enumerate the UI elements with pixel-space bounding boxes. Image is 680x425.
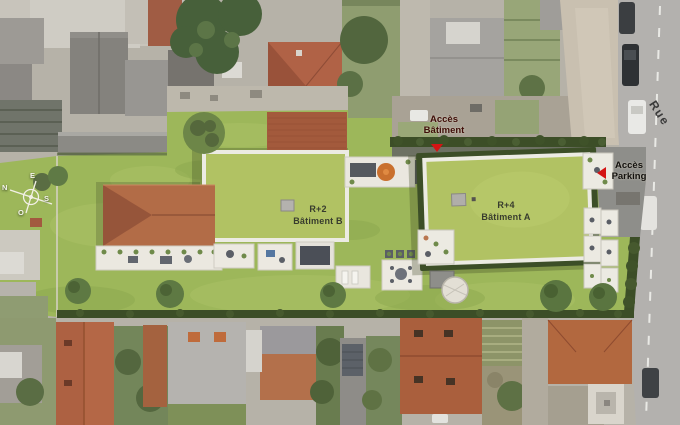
bottom-hedge xyxy=(57,310,634,318)
bottom-houses xyxy=(54,318,632,425)
building-b-west-terraces xyxy=(96,246,222,270)
building-a-southwest-terrace xyxy=(418,230,454,264)
site-plan-graphic xyxy=(0,0,680,425)
building-a-skylight xyxy=(451,193,465,205)
building-b-skylight xyxy=(281,200,294,211)
building-b-green-roof xyxy=(204,152,347,240)
site-plan-canvas: R+2 Bâtiment B R+4 Bâtiment A Accès Bâti… xyxy=(0,0,680,425)
